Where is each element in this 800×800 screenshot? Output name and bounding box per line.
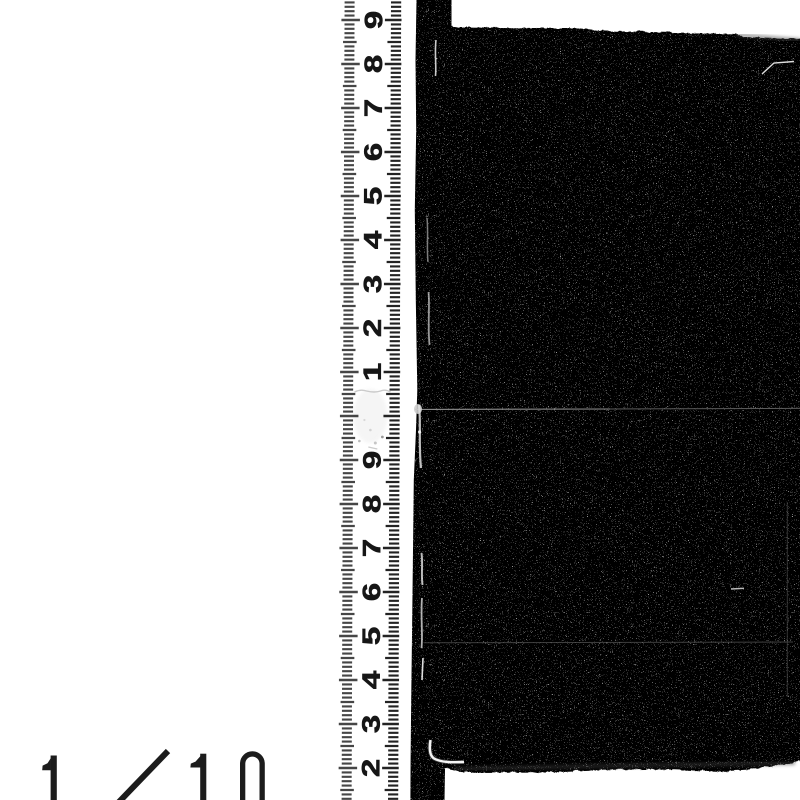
svg-text:6: 6	[358, 583, 386, 601]
svg-text:2: 2	[357, 759, 385, 777]
svg-text:2: 2	[359, 319, 387, 337]
svg-text:4: 4	[358, 671, 386, 689]
svg-text:3: 3	[359, 275, 387, 293]
svg-text:8: 8	[360, 55, 388, 73]
svg-text:9: 9	[358, 451, 386, 469]
svg-text:7: 7	[360, 99, 388, 117]
svg-text:9: 9	[360, 11, 388, 29]
svg-text:6: 6	[360, 143, 388, 161]
svg-text:1: 1	[359, 363, 387, 381]
svg-text:8: 8	[358, 495, 386, 513]
svg-text:7: 7	[358, 539, 386, 557]
svg-text:5: 5	[358, 627, 386, 645]
svg-text:3: 3	[357, 715, 385, 733]
svg-text:4: 4	[359, 231, 387, 249]
svg-text:5: 5	[359, 187, 387, 205]
